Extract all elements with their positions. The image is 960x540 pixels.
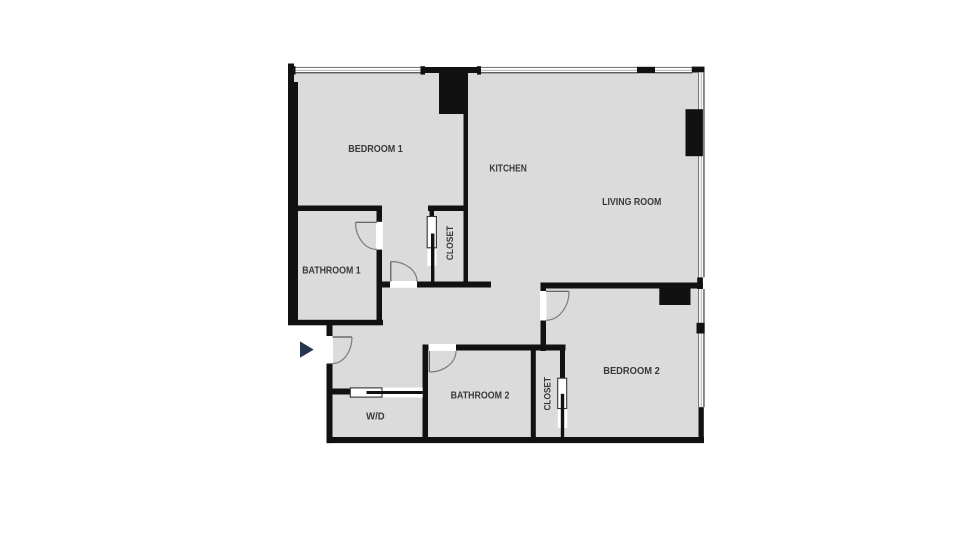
svg-text:W/D: W/D: [366, 411, 385, 422]
svg-text:BATHROOM 1: BATHROOM 1: [302, 265, 361, 276]
svg-text:BEDROOM 1: BEDROOM 1: [348, 144, 403, 155]
svg-text:CLOSET: CLOSET: [445, 226, 456, 261]
svg-text:KITCHEN: KITCHEN: [489, 164, 526, 175]
svg-text:BEDROOM 2: BEDROOM 2: [603, 366, 660, 377]
svg-text:BATHROOM 2: BATHROOM 2: [451, 391, 510, 402]
svg-text:LIVING ROOM: LIVING ROOM: [602, 197, 661, 208]
svg-text:CLOSET: CLOSET: [543, 377, 554, 411]
